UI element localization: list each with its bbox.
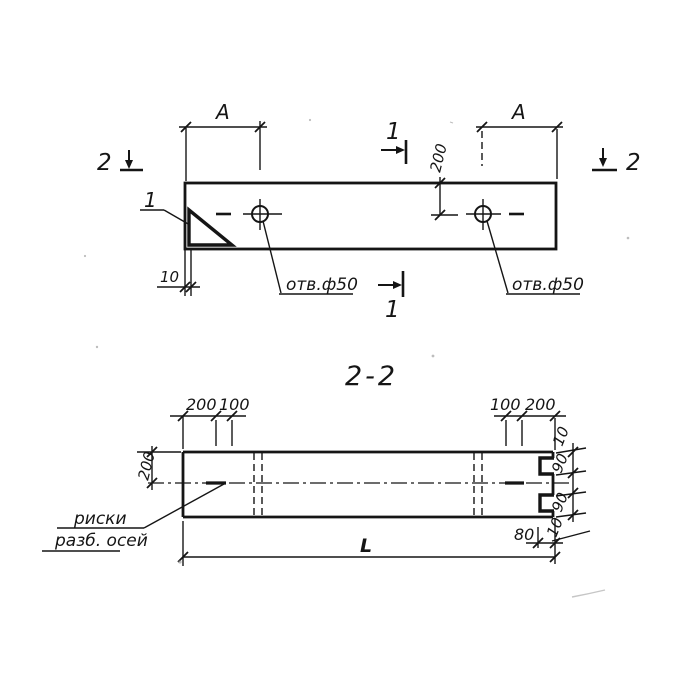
hole-left: [216, 199, 282, 230]
dim-a-right: А: [476, 100, 563, 179]
dim-length-L: L: [178, 519, 560, 566]
dim-right-1-label: 10: [549, 424, 573, 448]
section-view: 2-2: [42, 361, 590, 566]
dim-height-label: 200: [134, 450, 158, 482]
hole-callout-right: отв.ф50: [487, 221, 584, 295]
technical-drawing-sheet: А А 200 10: [0, 0, 700, 700]
dim-a-left-label: А: [214, 100, 230, 124]
dim-depth-200: 200: [426, 142, 458, 220]
corner-callout: 1: [140, 188, 190, 225]
dim-wall-10: 10: [157, 250, 200, 296]
plan-view: А А 200 10: [97, 100, 641, 323]
hidden-hole-lines: [254, 453, 482, 516]
corner-callout-label: 1: [144, 188, 157, 212]
section-marker-1-top: 1: [381, 119, 406, 164]
dim-wall-label: 10: [160, 268, 179, 286]
marker-1-bottom-label: 1: [385, 297, 400, 323]
dim-a-right-label: А: [510, 100, 526, 124]
dim-top-left: 200 100: [170, 395, 250, 449]
dim-top-left-1-label: 200: [186, 395, 217, 414]
section-marker-2-left: 2: [97, 150, 143, 176]
marker-2-left-label: 2: [97, 150, 112, 176]
marker-1-top-label: 1: [386, 119, 401, 145]
section-marker-2-right: 2: [592, 148, 641, 176]
dim-top-left-2-label: 100: [219, 395, 250, 414]
section-title: 2-2: [345, 361, 398, 392]
marker-2-right-label: 2: [626, 150, 641, 176]
plan-beam-outline: [185, 183, 556, 249]
hole-callout-left: отв.ф50: [263, 221, 358, 295]
axis-note-line2: разб. осей: [54, 531, 148, 551]
dim-top-right-1-label: 100: [490, 395, 521, 414]
dim-depth-label: 200: [426, 142, 450, 174]
dim-a-left: А: [179, 100, 267, 181]
section-beam-outline: [183, 452, 553, 517]
hole-callout-left-label: отв.ф50: [286, 275, 358, 295]
hole-right: [466, 199, 524, 230]
dim-top-right-2-label: 200: [525, 395, 556, 414]
axis-note-line1: риски: [73, 509, 127, 529]
dim-notch-label: 80: [514, 525, 534, 544]
section-marker-1-bottom: 1: [378, 271, 403, 323]
dim-length-label: L: [360, 535, 372, 557]
dim-right-2-label: 90: [548, 451, 572, 475]
drawing-canvas: А А 200 10: [0, 0, 700, 700]
hole-callout-right-label: отв.ф50: [512, 275, 584, 295]
